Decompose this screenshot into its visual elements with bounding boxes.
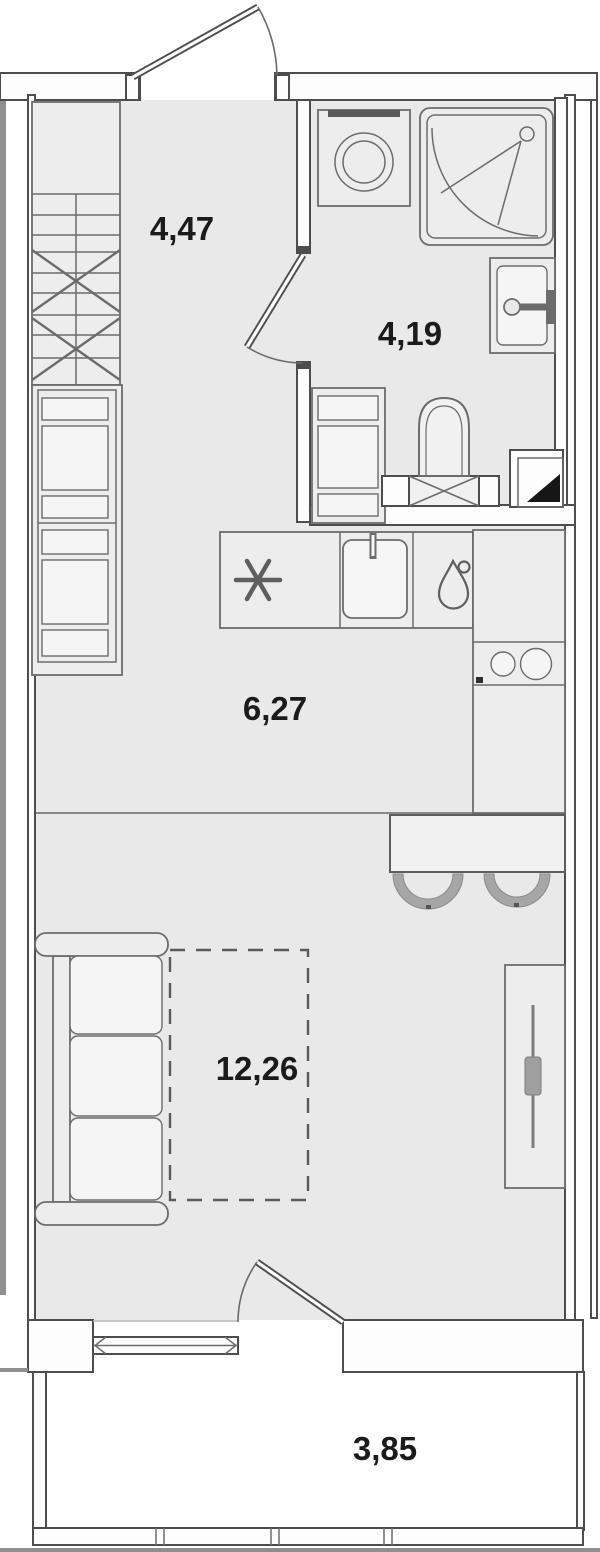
bottom-wall-left-block: [28, 1320, 93, 1372]
bathroom-door-jamb-top: [297, 246, 310, 253]
sofa-armrest: [35, 933, 168, 956]
right-outer-line: [591, 73, 597, 1318]
balcony-outer-line: [0, 1548, 600, 1552]
sofa: [35, 933, 168, 1225]
sofa-cushion: [70, 1118, 162, 1200]
floor-plan-page: 4,47 4,19 6,27 12,26 3,85: [0, 0, 600, 1552]
sofa-armrest: [35, 1202, 168, 1225]
living-room-area-label: 12,26: [216, 1050, 299, 1087]
balcony: [0, 1372, 600, 1552]
hall-shelving-rack: [32, 102, 120, 385]
hallway-area-label: 4,47: [150, 210, 214, 247]
hall-cabinet: [32, 385, 122, 675]
wardrobe-hanger: [525, 1057, 541, 1095]
bathroom-area-label: 4,19: [378, 315, 442, 352]
balcony-left-wall: [33, 1372, 46, 1530]
top-wall-right: [275, 73, 597, 100]
washing-machine-panel: [328, 110, 400, 117]
entrance-door-swing-arc: [258, 7, 277, 75]
entrance-jamb-right: [276, 75, 289, 100]
bottom-wall-right-block: [343, 1320, 583, 1372]
kitchen-counter-column: [473, 530, 565, 813]
wardrobe-with-rail: [505, 965, 565, 1188]
top-wall-left: [0, 73, 140, 100]
sofa-cushion: [70, 956, 162, 1034]
kitchen-counter-row: [220, 532, 473, 628]
washbasin: [490, 258, 555, 353]
bathroom-partition-upper: [297, 100, 310, 253]
bathroom-partition-lower: [297, 362, 310, 522]
kitchen-sink: [343, 533, 407, 618]
balcony-railing: [33, 1528, 583, 1545]
entrance-jamb-left: [126, 75, 139, 100]
entrance-door: [133, 7, 277, 77]
balcony-right-wall: [577, 1372, 584, 1530]
washing-machine: [318, 110, 410, 206]
window: [93, 1321, 238, 1354]
kitchen-area-label: 6,27: [243, 690, 307, 727]
sofa-backrest: [53, 956, 70, 1202]
floor-plan-svg: 4,47 4,19 6,27 12,26 3,85: [0, 0, 600, 1552]
sofa-cushion: [70, 1036, 162, 1116]
ventilation-shaft: [510, 450, 563, 507]
left-outer-strip: [0, 73, 6, 1295]
balcony-area-label: 3,85: [353, 1430, 417, 1467]
shower-cabin: [420, 108, 553, 245]
storage-cabinet: [312, 388, 385, 523]
